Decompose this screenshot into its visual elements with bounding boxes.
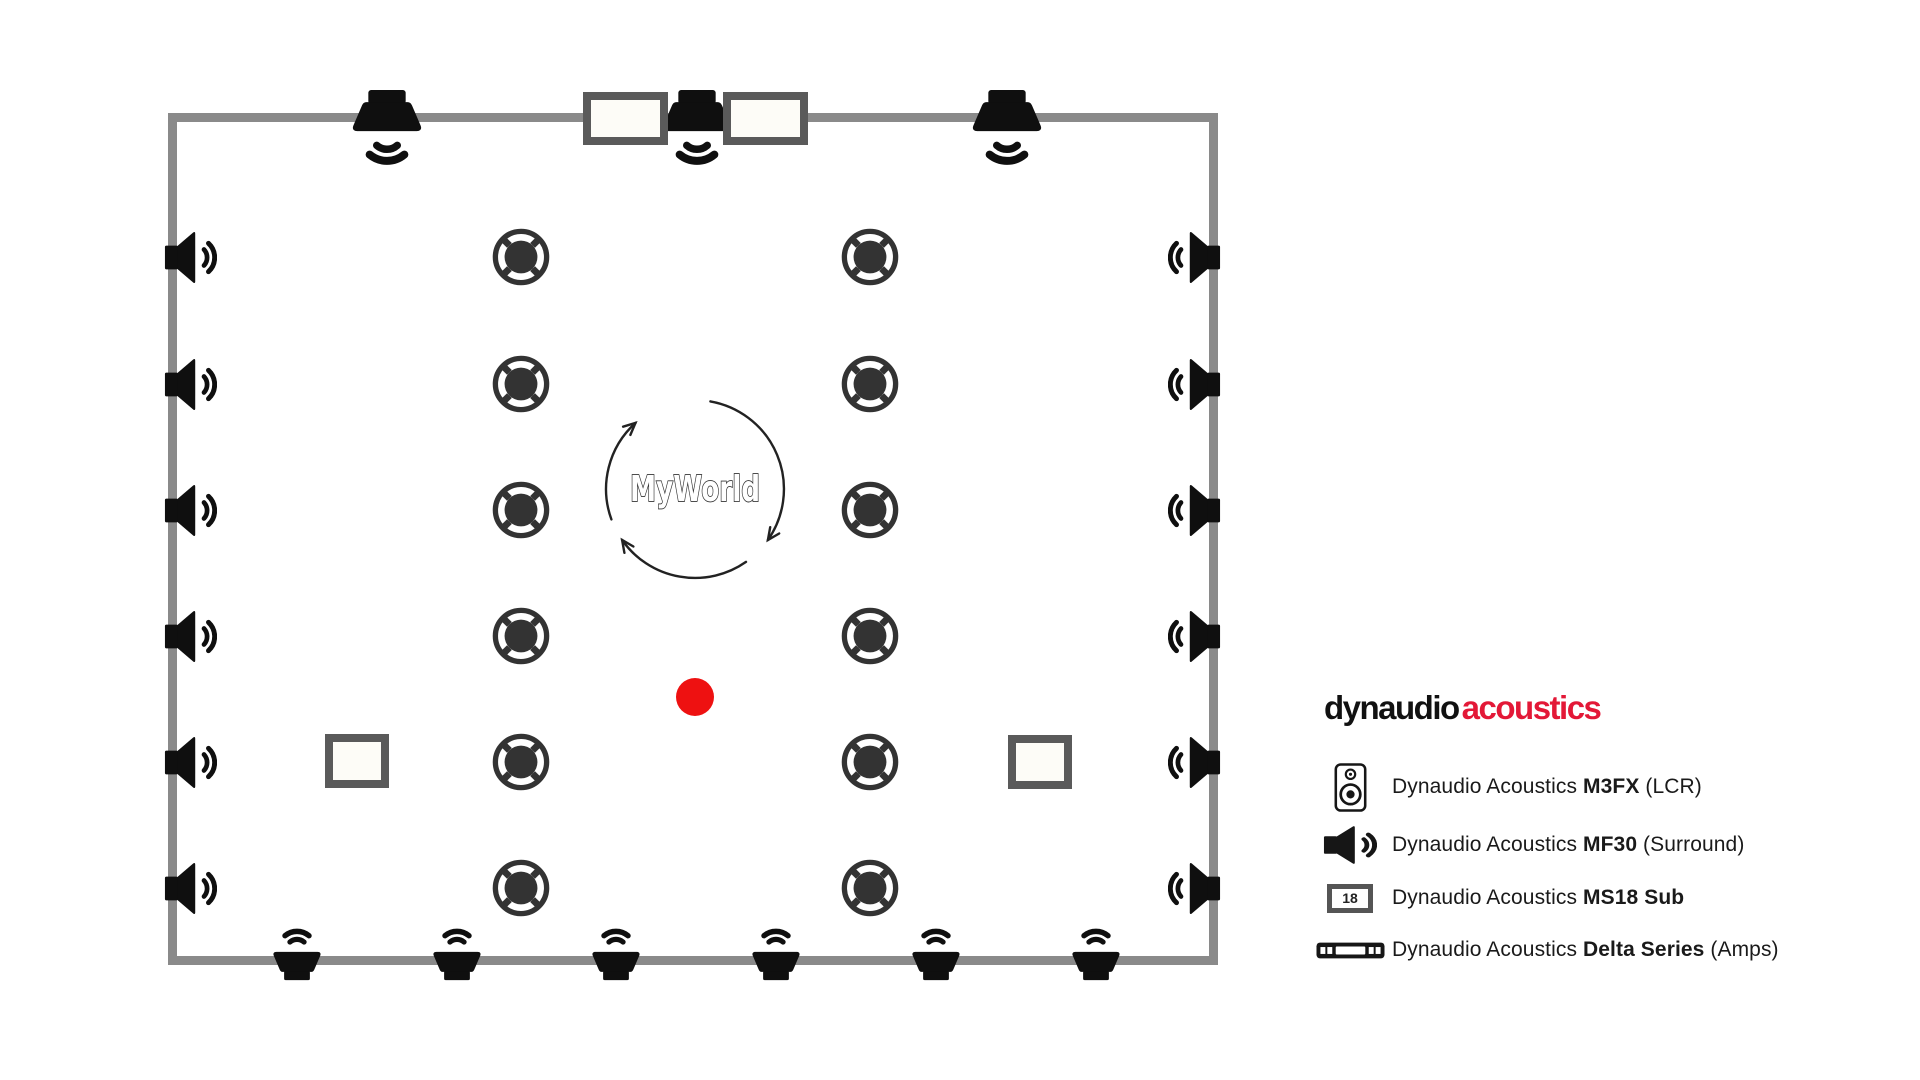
surround-speaker-icon <box>1323 824 1377 866</box>
subwoofer-box <box>583 92 668 145</box>
ceiling-speaker-icon <box>841 859 899 917</box>
brand-dynaudio: dynaudio <box>1324 689 1459 726</box>
ceiling-speaker-icon <box>841 733 899 791</box>
ceiling-speaker-icon <box>492 355 550 413</box>
lcr-speaker-icon <box>965 90 1049 176</box>
listening-position-dot <box>676 678 714 716</box>
surround-speaker-icon <box>164 860 217 917</box>
ceiling-speaker-icon <box>841 607 899 665</box>
lcr-speaker-icon <box>345 90 429 176</box>
ceiling-speaker-icon <box>841 481 899 539</box>
bottom-surround-speaker-icon <box>1067 921 1125 980</box>
brand-acoustics: acoustics <box>1462 689 1601 726</box>
rotation-arrows-icon: MyWorld <box>595 389 795 589</box>
speaker-layout-diagram: MyWorld dynaudioacoustics Dynaudio Acous… <box>0 0 1920 1080</box>
subwoofer-box <box>723 92 808 145</box>
legend-row: 18Dynaudio Acoustics MS18 Sub <box>1308 883 1684 913</box>
surround-speaker-icon <box>1168 229 1221 286</box>
surround-speaker-icon <box>164 608 217 665</box>
bottom-surround-speaker-icon <box>587 921 645 980</box>
surround-speaker-icon <box>1168 734 1221 791</box>
bottom-surround-speaker-icon <box>747 921 805 980</box>
amplifier-icon <box>1316 942 1385 959</box>
surround-speaker-icon <box>164 482 217 539</box>
ceiling-speaker-icon <box>492 733 550 791</box>
surround-speaker-icon <box>164 229 217 286</box>
bottom-surround-speaker-icon <box>428 921 486 980</box>
legend-row: Dynaudio Acoustics Delta Series (Amps) <box>1308 935 1779 965</box>
myworld-logo: MyWorld <box>595 389 795 589</box>
surround-speaker-icon <box>1168 356 1221 413</box>
legend-row: Dynaudio Acoustics MF30 (Surround) <box>1308 830 1744 860</box>
legend-icon-slot: 18 <box>1308 884 1392 913</box>
surround-speaker-icon <box>164 734 217 791</box>
surround-speaker-icon <box>1168 608 1221 665</box>
legend-icon-slot <box>1308 942 1392 959</box>
bottom-surround-speaker-icon <box>907 921 965 980</box>
subwoofer-box <box>325 734 389 788</box>
cabinet-speaker-icon <box>1334 763 1367 812</box>
bottom-surround-speaker-icon <box>268 921 326 980</box>
ceiling-speaker-icon <box>492 481 550 539</box>
surround-speaker-icon <box>1168 482 1221 539</box>
legend-label: Dynaudio Acoustics Delta Series (Amps) <box>1392 938 1779 962</box>
legend-label: Dynaudio Acoustics M3FX (LCR) <box>1392 775 1702 799</box>
legend-icon-slot <box>1308 763 1392 812</box>
surround-speaker-icon <box>1168 860 1221 917</box>
myworld-text: MyWorld <box>630 469 760 510</box>
ceiling-speaker-icon <box>492 228 550 286</box>
ceiling-speaker-icon <box>841 228 899 286</box>
ceiling-speaker-icon <box>841 355 899 413</box>
legend-label: Dynaudio Acoustics MF30 (Surround) <box>1392 833 1744 857</box>
brand-logo: dynaudioacoustics <box>1324 691 1600 725</box>
legend-icon-slot <box>1308 824 1392 866</box>
legend-label: Dynaudio Acoustics MS18 Sub <box>1392 886 1684 910</box>
subwoofer-icon: 18 <box>1327 884 1373 913</box>
ceiling-speaker-icon <box>492 859 550 917</box>
subwoofer-box <box>1008 735 1072 789</box>
legend-row: Dynaudio Acoustics M3FX (LCR) <box>1308 772 1702 802</box>
ceiling-speaker-icon <box>492 607 550 665</box>
surround-speaker-icon <box>164 356 217 413</box>
